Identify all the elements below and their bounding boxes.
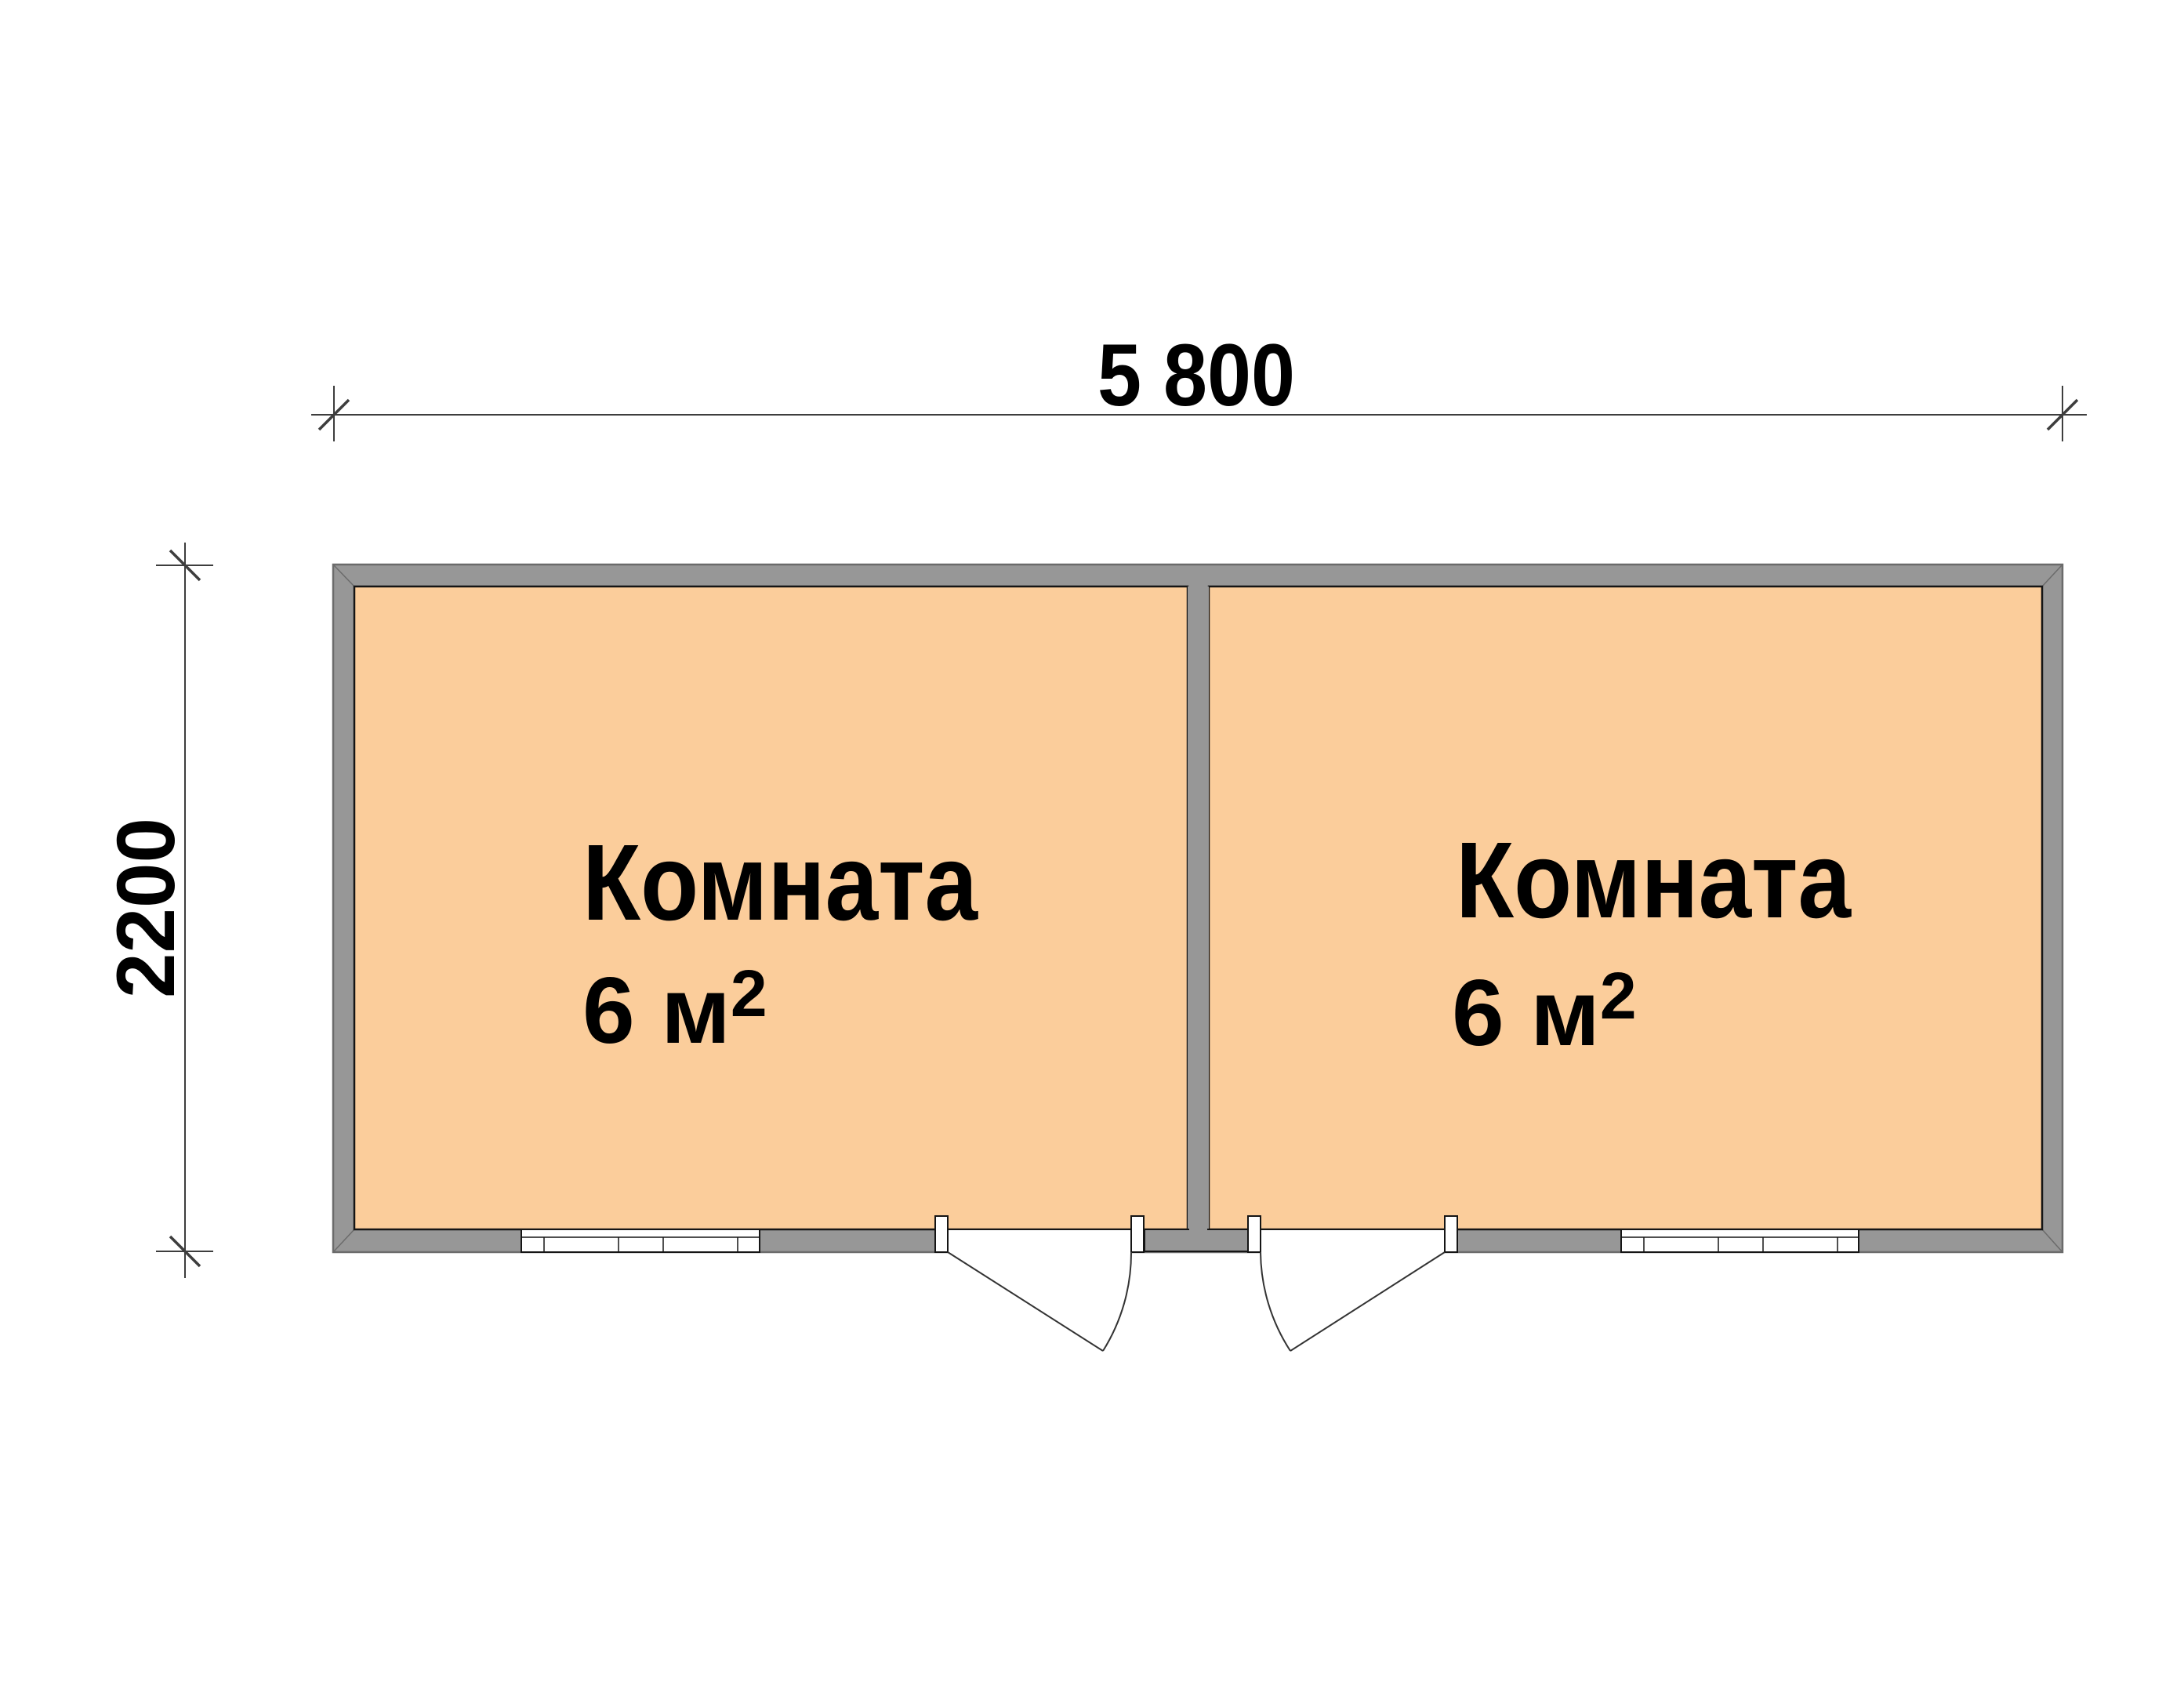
partition-foot-joint [1189,1226,1207,1233]
partition-wall [1188,586,1209,1229]
window-right [1621,1229,1859,1252]
room-left-area-value: 6 м [582,958,731,1063]
partition-foot-wall [1145,1229,1248,1251]
door-right-opening [1261,1230,1445,1254]
door-left-hinge-jamb [935,1216,948,1252]
dimension-width-label: 5 800 [1097,326,1295,424]
window-left [521,1229,760,1252]
dimension-height-label: 2200 [100,818,192,998]
door-left-strike-jamb [1131,1216,1144,1252]
floor-plan-page: 5 800 2200 [0,0,2184,1681]
door-right-strike-jamb [1248,1216,1261,1252]
door-right-hinge-jamb [1445,1216,1457,1252]
door-left-opening [948,1230,1131,1254]
room-right-area-value: 6 м [1452,960,1600,1066]
window-right-frame [1621,1229,1859,1252]
window-left-frame [521,1229,760,1252]
room-right-area-superscript: 2 [1600,959,1637,1033]
room-left-name: Комната [582,822,978,943]
room-left-area-superscript: 2 [731,957,767,1030]
floor-plan-drawing: 5 800 2200 [0,0,2184,1681]
room-right-name: Комната [1456,820,1852,941]
